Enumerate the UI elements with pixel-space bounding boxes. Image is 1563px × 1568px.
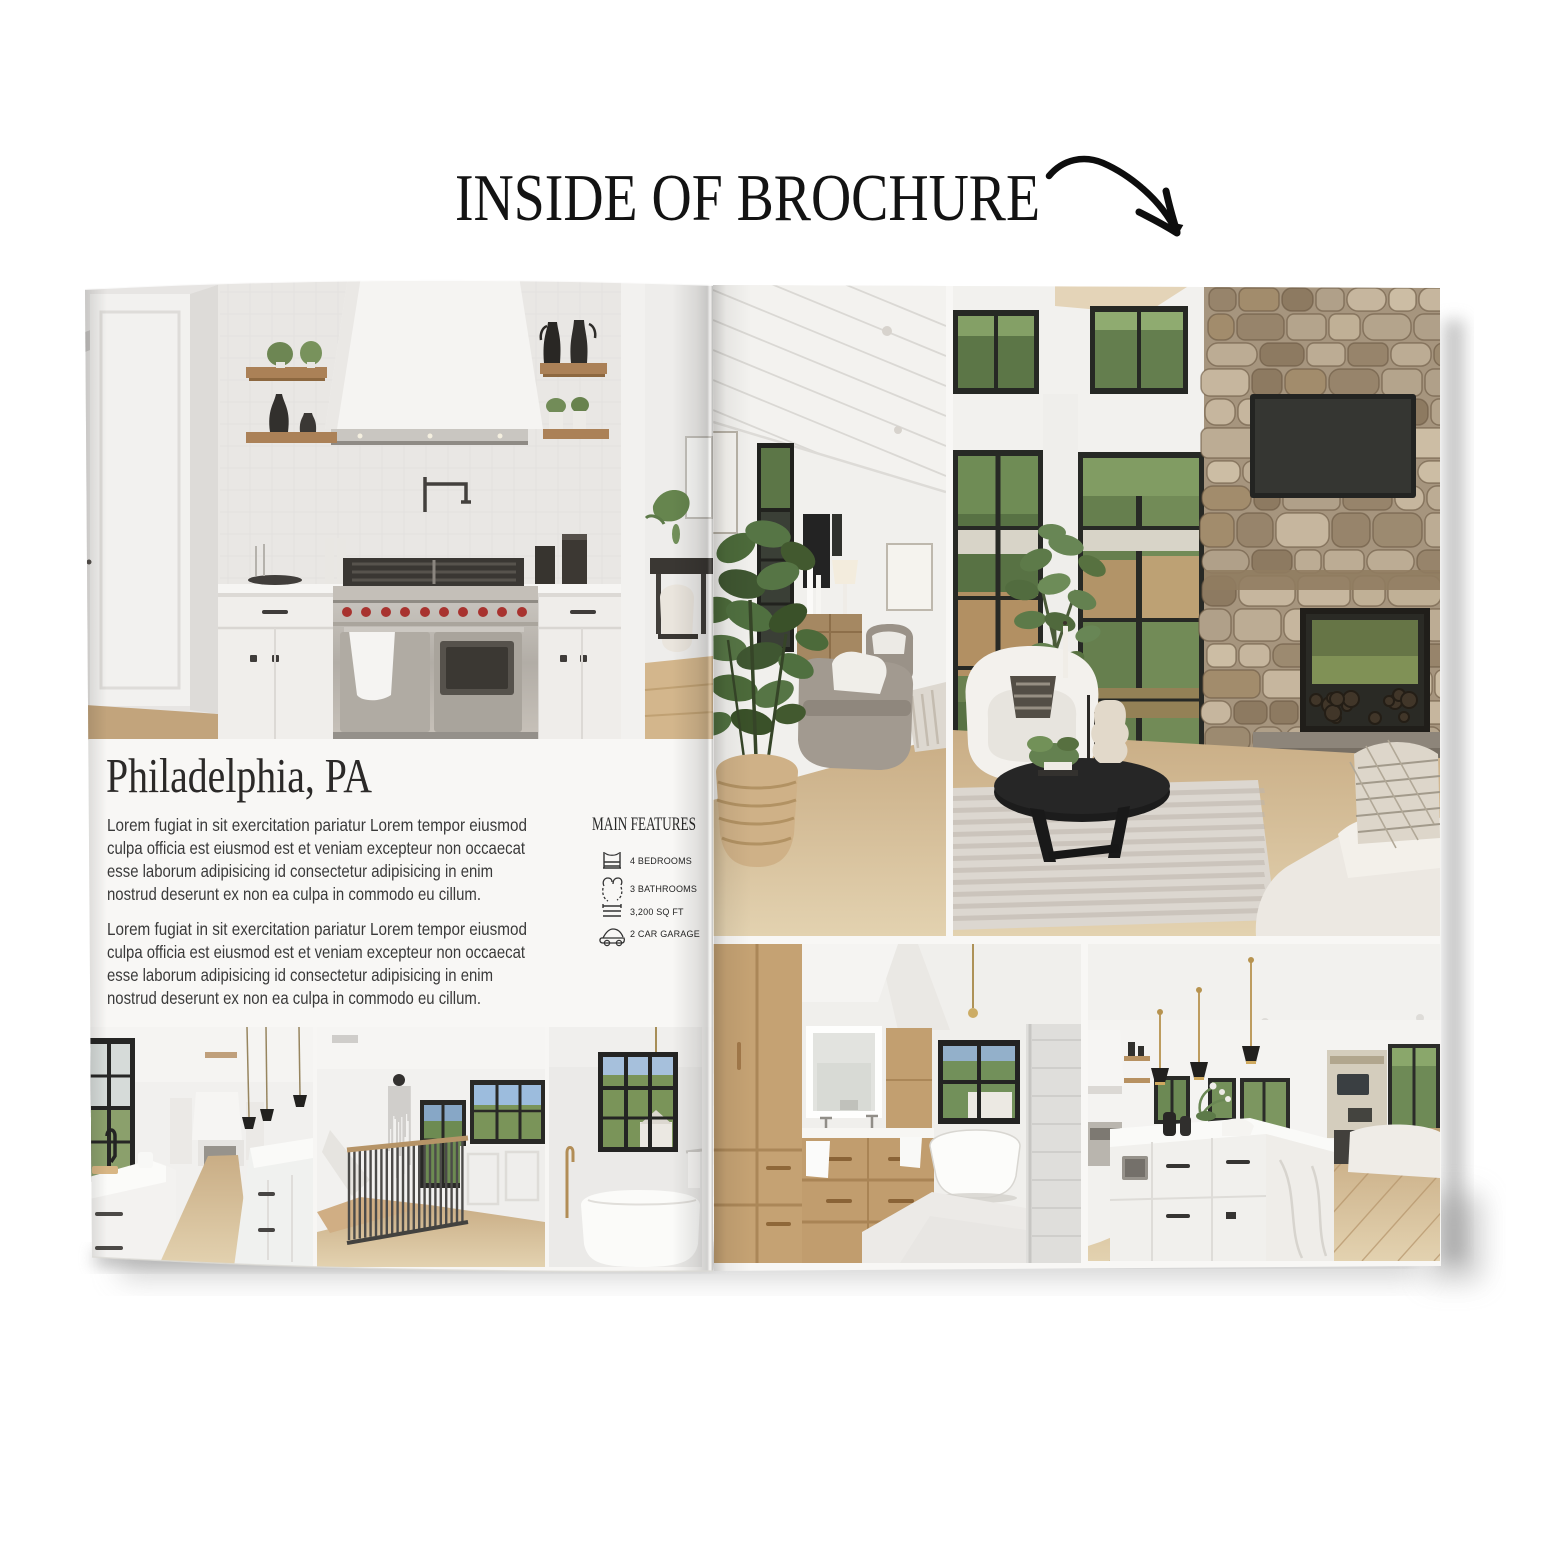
svg-text:esse laborum adipisicing id co: esse laborum adipisicing id consectetur … (107, 861, 493, 881)
svg-text:culpa officia est eiusmod est: culpa officia est eiusmod est et veniam … (107, 942, 525, 962)
svg-text:INSIDE OF BROCHURE: INSIDE OF BROCHURE (455, 161, 1040, 235)
svg-text:nostrud deserunt ex non ea cul: nostrud deserunt ex non ea culpa in comm… (107, 884, 481, 904)
svg-text:Lorem fugiat in sit exercitati: Lorem fugiat in sit exercitation pariatu… (107, 815, 527, 835)
svg-text:Lorem fugiat in sit exercitati: Lorem fugiat in sit exercitation pariatu… (107, 919, 527, 939)
svg-text:Philadelphia, PA: Philadelphia, PA (106, 748, 372, 803)
svg-text:nostrud deserunt ex non ea cul: nostrud deserunt ex non ea culpa in comm… (107, 988, 481, 1008)
svg-text:esse laborum adipisicing id co: esse laborum adipisicing id consectetur … (107, 965, 493, 985)
svg-text:culpa officia est eiusmod est: culpa officia est eiusmod est et veniam … (107, 838, 525, 858)
